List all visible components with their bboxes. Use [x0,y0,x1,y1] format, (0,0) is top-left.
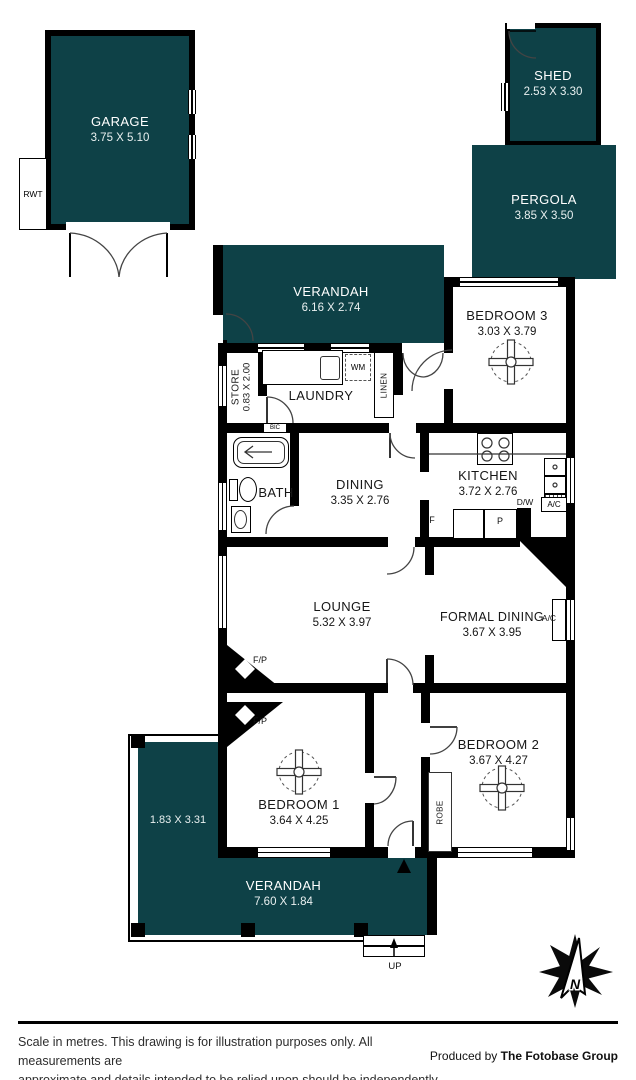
footer-divider [18,1021,618,1024]
window [566,600,575,640]
garage-name: GARAGE [45,114,195,130]
bath-label: BATH [246,485,306,501]
bedroom1-label: BEDROOM 1 3.64 X 4.25 [232,797,366,827]
window [218,483,227,530]
up-label: UP [380,962,410,972]
kitchen-sink [544,476,566,494]
verandah-top-label: VERANDAH 6.16 X 2.74 [218,284,444,314]
footer-credit: Produced by The Fotobase Group [400,1049,618,1063]
verandah-top-name: VERANDAH [218,284,444,300]
kitchen-dims: 3.72 X 2.76 [432,486,544,499]
rainwater-tank: RWT [19,158,47,230]
bedroom2-label: BEDROOM 2 3.67 X 4.27 [436,737,561,767]
wall [365,693,374,773]
verandah-post [241,923,255,937]
verandah-top-dims: 6.16 X 2.74 [218,302,444,315]
garage-window [188,90,196,114]
laundry-label: LAUNDRY [266,388,376,404]
pergola-dims: 3.85 X 3.50 [472,210,616,223]
verandah-edge-line [128,734,130,942]
front-door-opening [388,847,415,858]
window [460,277,558,287]
formal-dining-label: FORMAL DINING 3.67 X 3.95 [434,610,550,640]
bedroom2-dims: 3.67 X 4.27 [436,755,561,768]
bedroom3-name: BEDROOM 3 [448,308,566,324]
footer-disclaimer: Scale in metres. This drawing is for ill… [18,1033,458,1080]
garage-label: GARAGE 3.75 X 5.10 [45,114,195,144]
verandah-post [131,734,145,748]
bedroom1-dims: 3.64 X 4.25 [232,815,366,828]
robe: ROBE [428,772,452,852]
kitchen-label: KITCHEN 3.72 X 2.76 [432,468,544,498]
fridge-label: F [424,516,440,525]
window [218,556,227,628]
shed-dims: 2.53 X 3.30 [505,86,601,99]
bathtub-inner [237,441,285,464]
aircon-unit: A/C [541,497,567,512]
basin-bowl [234,510,247,529]
linen-cupboard: LINEN [374,352,394,418]
company-name: The Fotobase Group [501,1049,618,1063]
pantry-label: P [483,517,517,526]
window [566,818,575,850]
wall [218,683,388,693]
verandah-bottom-dims: 7.60 X 1.84 [196,896,371,909]
trough-bowl [320,356,340,380]
dining-label: DINING 3.35 X 2.76 [300,477,420,507]
verandah-side-label: 1.83 X 3.31 [138,812,218,826]
lounge-dims: 5.32 X 3.97 [272,617,412,630]
lounge-name: LOUNGE [272,599,412,615]
robe-label: ROBE [436,800,445,824]
door-opening [388,537,415,547]
compass-north-label: N [570,976,581,992]
window [458,847,532,858]
fireplace-label: F/P [253,656,283,665]
store-name: STORE [230,363,241,412]
store-dims: 0.83 X 2.00 [241,363,252,412]
dining-dims: 3.35 X 2.76 [300,495,420,508]
door-opening [388,683,413,693]
wall [420,432,429,472]
window [566,458,575,503]
toilet-cistern [229,479,238,501]
verandah-bottom-name: VERANDAH [196,878,371,894]
bedroom2-name: BEDROOM 2 [436,737,561,753]
wall [425,547,434,575]
kitchen-name: KITCHEN [432,468,544,484]
rwt-label: RWT [23,189,42,199]
diagonal-wall [516,537,571,592]
floor-plan: GARAGE 3.75 X 5.10 RWT SHED 2.53 X 3.30 … [0,0,636,1080]
cooktop [477,433,513,465]
store-label: STORE 0.83 X 2.00 [221,348,261,426]
compass-icon: N [539,934,613,1008]
verandah-edge-line [128,940,368,942]
bath-name: BATH [246,485,306,501]
wall [427,851,437,935]
wall [218,537,388,547]
wall [413,683,575,693]
laundry-name: LAUNDRY [266,388,376,404]
dishwasher-label: D/W [510,498,540,507]
verandah-bottom-label: VERANDAH 7.60 X 1.84 [196,878,371,908]
shed-label: SHED 2.53 X 3.30 [505,68,601,98]
dining-name: DINING [300,477,420,493]
produced-by-text: Produced by [430,1049,497,1063]
wall-stub [517,508,531,539]
garage-door-opening [66,222,170,231]
step [363,946,425,957]
verandah-door-opening [213,315,223,343]
disclaimer-line1: Scale in metres. This drawing is for ill… [18,1033,458,1071]
garage-dims: 3.75 X 5.10 [45,132,195,145]
shed-name: SHED [505,68,601,84]
verandah-post [131,923,145,937]
door-opening [389,423,416,433]
pergola-label: PERGOLA 3.85 X 3.50 [472,192,616,222]
lounge-label: LOUNGE 5.32 X 3.97 [272,599,412,629]
kitchen-sink [544,458,566,476]
shed-door-opening [507,23,535,29]
pergola-name: PERGOLA [472,192,616,208]
bedroom1-name: BEDROOM 1 [232,797,366,813]
disclaimer-line2: approximate and details intended to be r… [18,1071,458,1080]
bedroom3-label: BEDROOM 3 3.03 X 3.79 [448,308,566,338]
verandah-side-dims: 1.83 X 3.31 [138,814,218,826]
ac-label: A/C [547,500,560,509]
linen-label: LINEN [380,372,389,398]
formal-dining-dims: 3.67 X 3.95 [434,627,550,640]
double-door-opening [402,343,444,353]
window [258,847,330,858]
bic-label: BIC [270,425,280,431]
fireplace-label: F/P [253,717,283,726]
wm-label: WM [351,363,365,372]
formal-dining-name: FORMAL DINING [434,610,550,625]
wall-right [566,277,575,858]
built-in-cupboard: BIC [263,423,287,433]
wall [421,693,430,723]
step [363,935,425,946]
washing-machine: WM [345,354,371,381]
bedroom3-dims: 3.03 X 3.79 [448,326,566,339]
